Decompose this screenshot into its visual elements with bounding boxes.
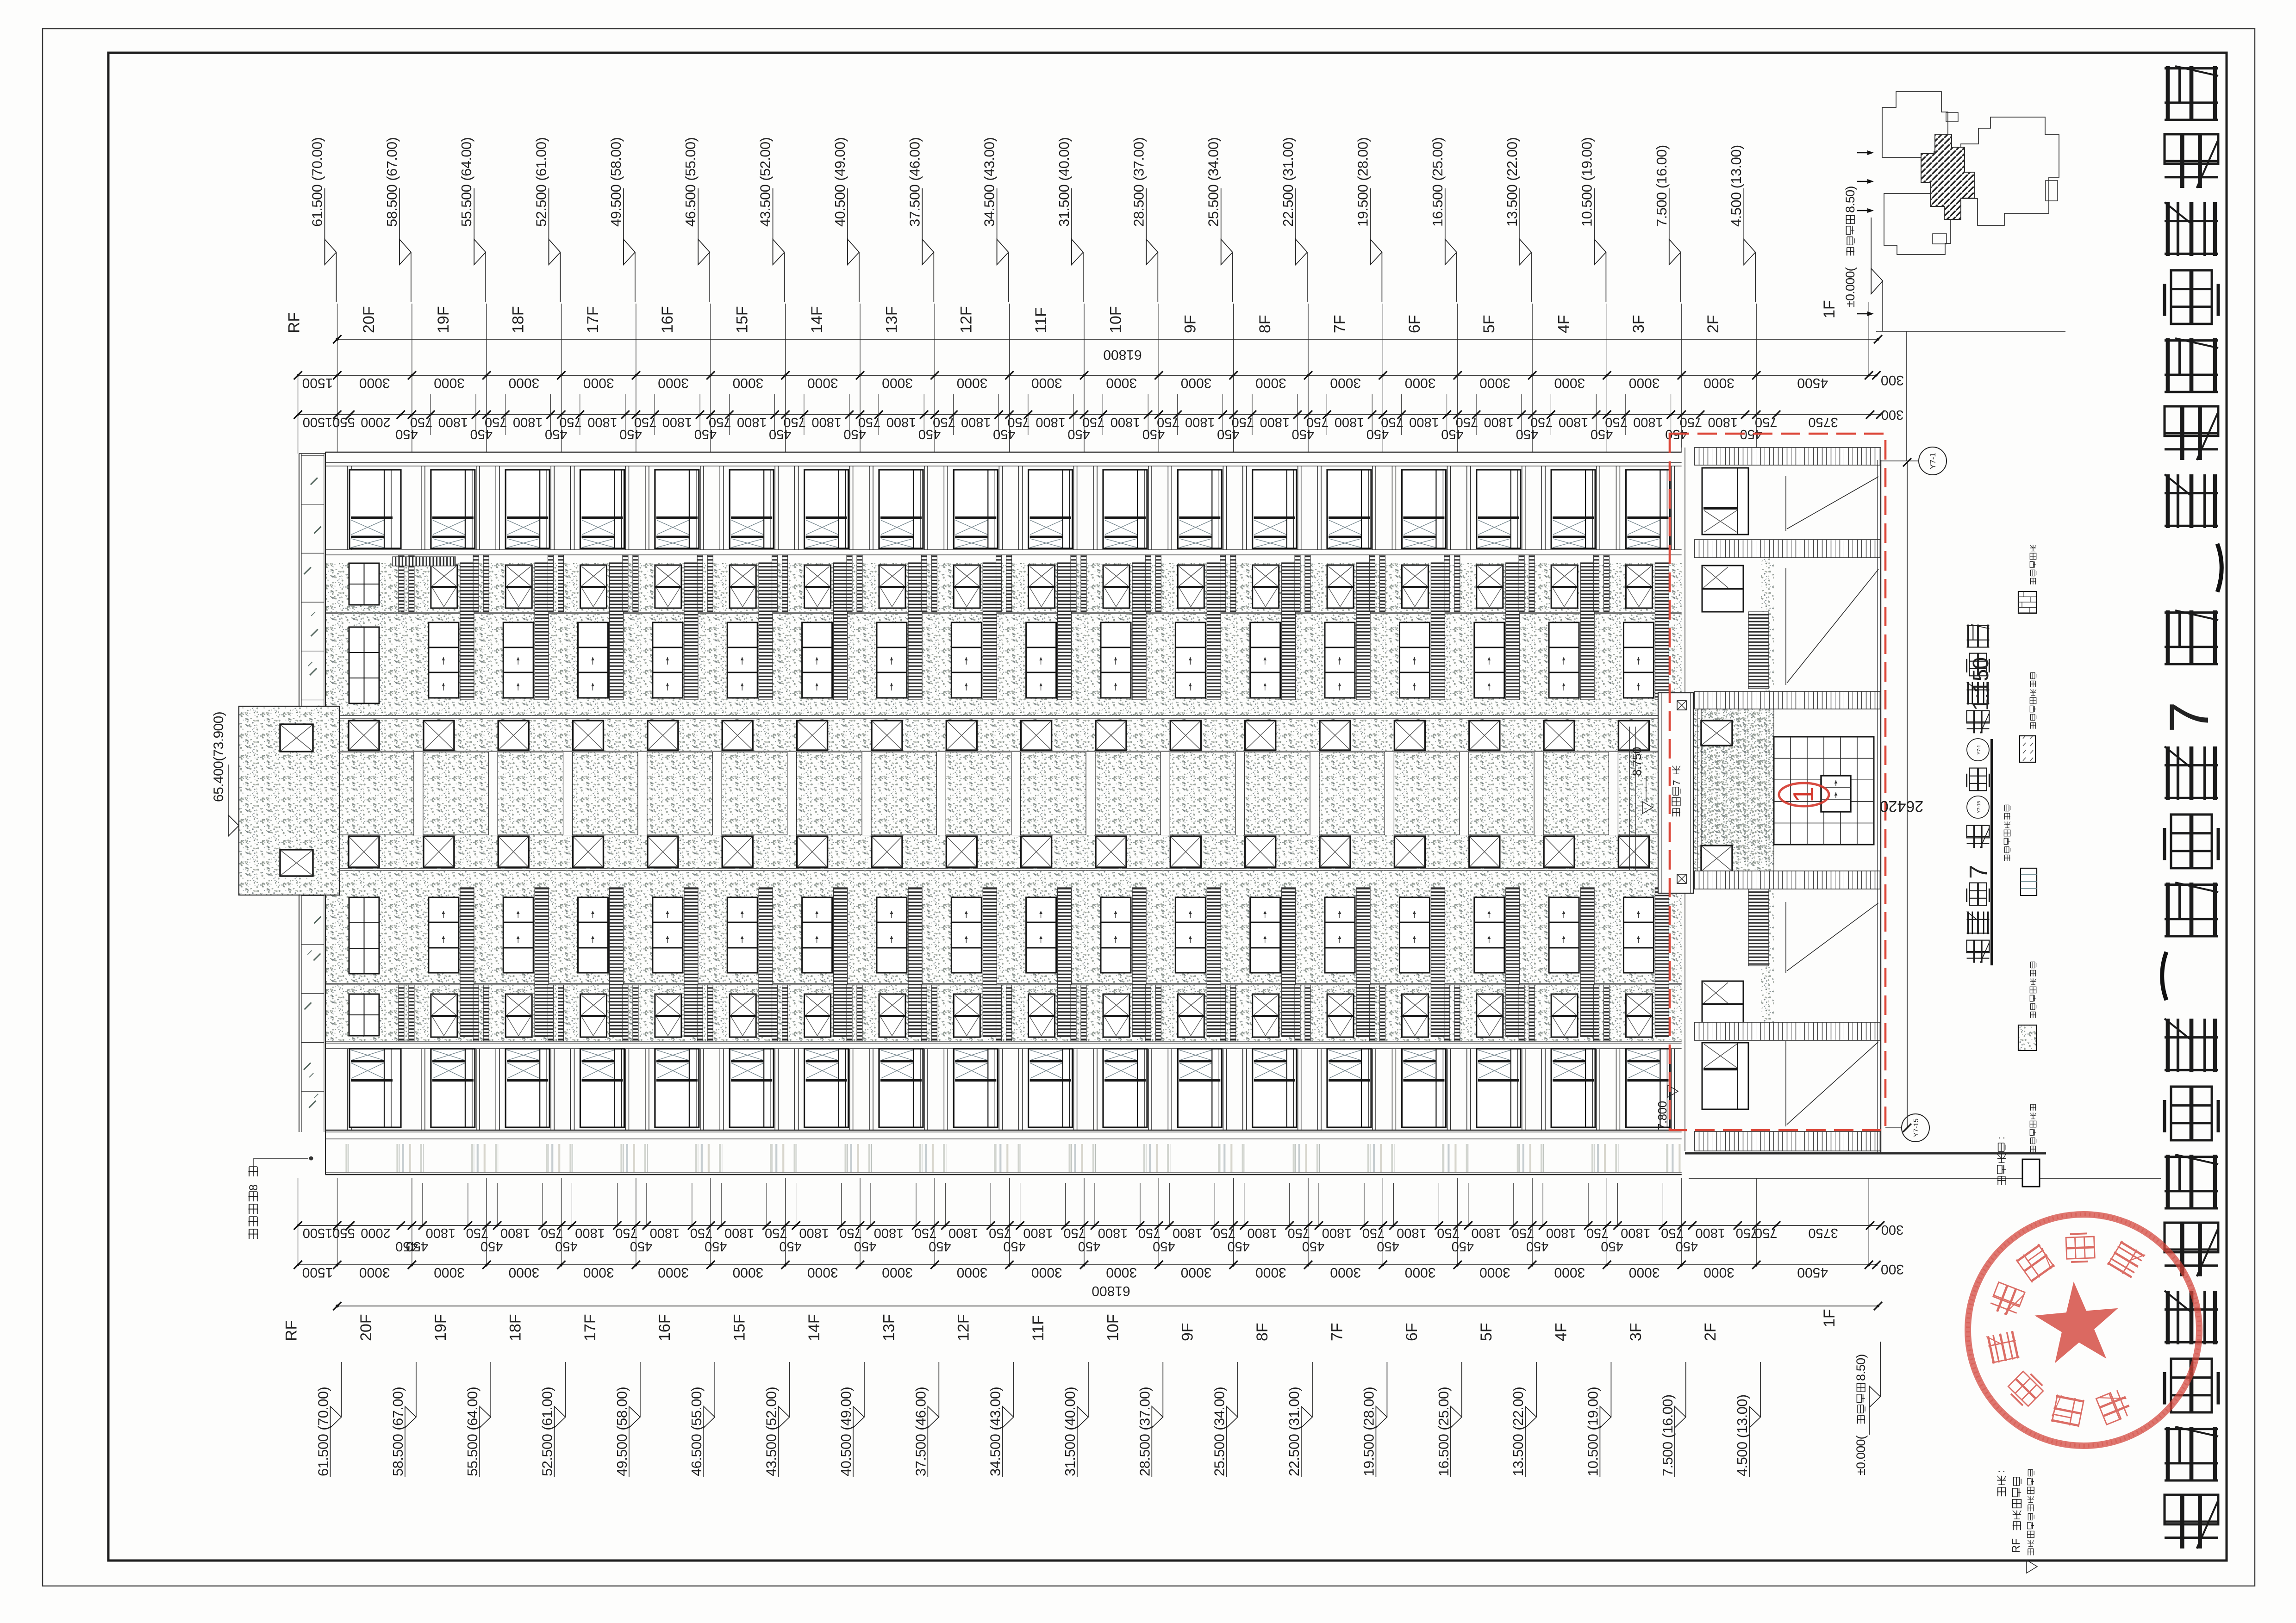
svg-text:1800: 1800 [587, 415, 618, 429]
svg-text:550: 550 [332, 415, 355, 429]
svg-text:3000: 3000 [1031, 1265, 1062, 1280]
svg-text:3000: 3000 [882, 375, 913, 391]
svg-text:10.500 (19.00): 10.500 (19.00) [1585, 1387, 1601, 1476]
svg-text:1800: 1800 [1247, 1225, 1277, 1240]
svg-text:7.800: 7.800 [1655, 1101, 1669, 1130]
svg-text:1800: 1800 [1098, 1225, 1128, 1240]
svg-text:3000: 3000 [1703, 1265, 1734, 1280]
svg-text:450: 450 [705, 1239, 727, 1254]
svg-text:750: 750 [1680, 415, 1702, 429]
svg-text:1500: 1500 [302, 1265, 333, 1280]
svg-text::: : [1995, 1470, 2007, 1473]
svg-text:11F: 11F [1029, 1315, 1047, 1341]
svg-text:750: 750 [410, 415, 432, 429]
svg-text:1800: 1800 [1409, 415, 1439, 429]
svg-text:1800: 1800 [1696, 1225, 1726, 1240]
svg-text:RF: RF [283, 1320, 300, 1341]
svg-text:300: 300 [1881, 1222, 1903, 1237]
svg-text:750: 750 [1362, 1225, 1385, 1240]
svg-text:750: 750 [1063, 1225, 1086, 1240]
svg-text:750: 750 [1755, 1225, 1777, 1240]
svg-text:750: 750 [466, 1225, 488, 1240]
svg-text:1800: 1800 [1111, 415, 1141, 429]
svg-text:2000: 2000 [361, 1225, 391, 1240]
svg-text:3000: 3000 [1479, 1265, 1510, 1280]
svg-text:8F: 8F [1256, 315, 1274, 333]
svg-text:52.500 (61.00): 52.500 (61.00) [533, 137, 549, 227]
svg-text:8.50): 8.50) [1854, 1354, 1868, 1381]
svg-text:1800: 1800 [1708, 415, 1738, 429]
svg-text:1F: 1F [1821, 300, 1838, 318]
svg-text:3000: 3000 [359, 1265, 390, 1280]
svg-text:40.500 (49.00): 40.500 (49.00) [832, 137, 848, 227]
svg-text:1800: 1800 [1335, 415, 1365, 429]
svg-text:3F: 3F [1627, 1323, 1645, 1341]
svg-text::: : [1995, 1137, 2007, 1139]
svg-text:4.500 (13.00): 4.500 (13.00) [1728, 145, 1744, 227]
svg-text:3000: 3000 [733, 375, 764, 391]
svg-text:1800: 1800 [874, 1225, 904, 1240]
svg-text:37.500 (46.00): 37.500 (46.00) [912, 1387, 929, 1476]
svg-text:1800: 1800 [426, 1225, 456, 1240]
svg-text:49.500 (58.00): 49.500 (58.00) [614, 1387, 630, 1476]
svg-text:46.500 (55.00): 46.500 (55.00) [688, 1387, 705, 1476]
svg-text:46.500 (55.00): 46.500 (55.00) [682, 137, 699, 227]
svg-text:750: 750 [1381, 415, 1403, 429]
svg-text:450: 450 [630, 1239, 652, 1254]
svg-text:750: 750 [783, 415, 805, 429]
svg-text:750: 750 [765, 1225, 787, 1240]
svg-text:750: 750 [1232, 415, 1254, 429]
svg-text:3000: 3000 [1181, 1265, 1212, 1280]
svg-text:58.500 (67.00): 58.500 (67.00) [390, 1387, 406, 1476]
svg-text:49.500 (58.00): 49.500 (58.00) [608, 137, 624, 227]
svg-text:RF: RF [286, 312, 303, 333]
svg-text:750: 750 [1007, 415, 1029, 429]
svg-text:34.500 (43.00): 34.500 (43.00) [987, 1387, 1004, 1476]
svg-text:300: 300 [1881, 407, 1903, 422]
svg-text:3000: 3000 [1405, 1265, 1436, 1280]
svg-text:750: 750 [989, 1225, 1011, 1240]
svg-text:450: 450 [1526, 1239, 1548, 1254]
svg-text:28.500 (37.00): 28.500 (37.00) [1130, 137, 1147, 227]
svg-text:3000: 3000 [1106, 1265, 1137, 1280]
svg-text:3000: 3000 [1330, 1265, 1361, 1280]
svg-text:20F: 20F [357, 1314, 375, 1341]
svg-text:3000: 3000 [1703, 375, 1734, 391]
svg-text:450: 450 [1601, 1239, 1623, 1254]
svg-text:3000: 3000 [807, 1265, 838, 1280]
svg-text:13.500 (22.00): 13.500 (22.00) [1504, 137, 1520, 227]
svg-text:3000: 3000 [957, 1265, 988, 1280]
svg-text:2F: 2F [1704, 315, 1722, 333]
svg-text:17F: 17F [584, 306, 602, 333]
svg-text:13F: 13F [883, 306, 900, 333]
svg-text:19F: 19F [432, 1314, 449, 1341]
svg-text:8.50): 8.50) [1843, 186, 1857, 213]
svg-text:3000: 3000 [359, 375, 390, 391]
svg-text:25.500 (34.00): 25.500 (34.00) [1205, 137, 1222, 227]
svg-text:14F: 14F [808, 306, 826, 333]
svg-text:2F: 2F [1702, 1323, 1719, 1341]
svg-text:750: 750 [1213, 1225, 1235, 1240]
svg-text:8F: 8F [1254, 1323, 1271, 1341]
svg-text:8: 8 [247, 1184, 260, 1191]
svg-text:1800: 1800 [811, 415, 842, 429]
svg-text:3750: 3750 [1808, 1225, 1838, 1240]
svg-text:750: 750 [914, 1225, 936, 1240]
svg-text:450: 450 [480, 1239, 503, 1254]
svg-text:3000: 3000 [583, 1265, 614, 1280]
svg-text:750: 750 [1082, 415, 1104, 429]
svg-text:750: 750 [634, 415, 656, 429]
svg-text:7F: 7F [1331, 315, 1348, 333]
svg-text:3000: 3000 [658, 1265, 689, 1280]
svg-text:1800: 1800 [1559, 415, 1589, 429]
svg-text:450: 450 [1228, 1239, 1250, 1254]
svg-text:1500: 1500 [303, 415, 333, 429]
svg-text:3000: 3000 [1255, 375, 1286, 391]
svg-text:750: 750 [541, 1225, 563, 1240]
svg-text:1800: 1800 [513, 415, 543, 429]
svg-text:1: 1 [1788, 787, 1820, 802]
svg-text:750: 750 [1530, 415, 1553, 429]
svg-text:3000: 3000 [509, 375, 540, 391]
svg-text:65.400(73.900): 65.400(73.900) [211, 712, 226, 802]
svg-text:16.500 (25.00): 16.500 (25.00) [1429, 137, 1446, 227]
svg-text:11F: 11F [1032, 307, 1050, 333]
svg-text:16F: 16F [656, 1314, 674, 1341]
svg-text:20F: 20F [360, 306, 378, 333]
svg-text:1800: 1800 [500, 1225, 530, 1240]
svg-text:3000: 3000 [733, 1265, 764, 1280]
svg-text:750: 750 [559, 415, 581, 429]
svg-text:3000: 3000 [583, 375, 614, 391]
svg-text:750: 750 [1736, 1225, 1758, 1240]
svg-text:31.500 (40.00): 31.500 (40.00) [1062, 1387, 1078, 1476]
svg-text:750: 750 [1288, 1225, 1310, 1240]
svg-text:55.500 (64.00): 55.500 (64.00) [458, 137, 474, 227]
svg-text:3000: 3000 [434, 375, 465, 391]
svg-text:2000: 2000 [361, 415, 391, 429]
svg-text:3000: 3000 [1330, 375, 1361, 391]
svg-text:750: 750 [933, 415, 955, 429]
svg-text:±0.000(: ±0.000( [1843, 267, 1857, 307]
svg-text:31.500 (40.00): 31.500 (40.00) [1056, 137, 1072, 227]
svg-text:3000: 3000 [807, 375, 838, 391]
svg-text:7F: 7F [1328, 1323, 1346, 1341]
svg-text:3000: 3000 [1255, 1265, 1286, 1280]
svg-text:4F: 4F [1552, 1323, 1570, 1341]
svg-text:3F: 3F [1630, 315, 1647, 333]
svg-text:3000: 3000 [434, 1265, 465, 1280]
svg-text:450: 450 [1377, 1239, 1399, 1254]
svg-text:450: 450 [929, 1239, 951, 1254]
svg-text:450: 450 [1676, 1239, 1698, 1254]
svg-text:7: 7 [1672, 780, 1682, 785]
svg-text:3000: 3000 [957, 375, 988, 391]
svg-text:450: 450 [1452, 1239, 1474, 1254]
svg-text:550: 550 [332, 1225, 355, 1240]
svg-text:1800: 1800 [1397, 1225, 1427, 1240]
svg-text:1800: 1800 [438, 415, 468, 429]
svg-text:450: 450 [406, 1239, 428, 1254]
svg-text:8.750: 8.750 [1630, 747, 1644, 776]
svg-text:43.500 (52.00): 43.500 (52.00) [763, 1387, 780, 1476]
svg-text:3000: 3000 [509, 1265, 540, 1280]
svg-text:1800: 1800 [1546, 1225, 1576, 1240]
svg-text:450: 450 [854, 1239, 876, 1254]
svg-text:43.500 (52.00): 43.500 (52.00) [757, 137, 774, 227]
svg-text:750: 750 [1512, 1225, 1534, 1240]
svg-text:450: 450 [555, 1239, 577, 1254]
svg-text:19.500 (28.00): 19.500 (28.00) [1360, 1387, 1377, 1476]
svg-text:1800: 1800 [662, 415, 693, 429]
svg-text:7.500 (16.00): 7.500 (16.00) [1653, 145, 1670, 227]
svg-text:750: 750 [1306, 415, 1329, 429]
svg-text:Y7-1: Y7-1 [1977, 745, 1982, 755]
svg-text:1800: 1800 [886, 415, 917, 429]
svg-text:750: 750 [1138, 1225, 1160, 1240]
svg-text:750: 750 [1661, 1225, 1683, 1240]
svg-text:3750: 3750 [1808, 415, 1838, 429]
svg-text:750: 750 [690, 1225, 712, 1240]
svg-text:4500: 4500 [1797, 1265, 1828, 1280]
svg-text:17F: 17F [581, 1314, 599, 1341]
svg-text:3000: 3000 [882, 1265, 913, 1280]
svg-text:300: 300 [1881, 1262, 1904, 1277]
svg-text:16F: 16F [659, 306, 676, 333]
svg-text:13.500 (22.00): 13.500 (22.00) [1510, 1387, 1526, 1476]
svg-text:12F: 12F [955, 1314, 973, 1341]
svg-text:1800: 1800 [1185, 415, 1215, 429]
svg-text:3000: 3000 [1181, 375, 1212, 391]
svg-text:19.500 (28.00): 19.500 (28.00) [1354, 137, 1371, 227]
svg-text:9F: 9F [1179, 1323, 1197, 1341]
svg-text:1800: 1800 [1621, 1225, 1651, 1240]
svg-text:1F: 1F [1821, 1309, 1838, 1327]
svg-text:750: 750 [1157, 415, 1179, 429]
svg-text:1800: 1800 [650, 1225, 680, 1240]
svg-text:6F: 6F [1403, 1323, 1421, 1341]
svg-text:300: 300 [1881, 373, 1904, 388]
svg-text:4.500 (13.00): 4.500 (13.00) [1734, 1394, 1750, 1476]
svg-text:3000: 3000 [1405, 375, 1436, 391]
svg-text:750: 750 [1437, 1225, 1459, 1240]
svg-text:750: 750 [1456, 415, 1478, 429]
svg-text:3000: 3000 [658, 375, 689, 391]
svg-text:750: 750 [615, 1225, 637, 1240]
svg-text:5F: 5F [1480, 315, 1498, 333]
svg-text:61800: 61800 [1103, 347, 1142, 362]
svg-text:6F: 6F [1406, 315, 1423, 333]
svg-text:55.500 (64.00): 55.500 (64.00) [464, 1387, 480, 1476]
svg-text:1500: 1500 [303, 1225, 333, 1240]
svg-text:18F: 18F [507, 1314, 524, 1341]
svg-text:5F: 5F [1478, 1323, 1495, 1341]
svg-text:61800: 61800 [1092, 1283, 1130, 1299]
svg-text:16.500 (25.00): 16.500 (25.00) [1435, 1387, 1452, 1476]
svg-text:1800: 1800 [1036, 415, 1066, 429]
svg-text:25.500 (34.00): 25.500 (34.00) [1211, 1387, 1228, 1476]
svg-text:7.500 (16.00): 7.500 (16.00) [1660, 1394, 1676, 1476]
svg-text:61.500 (70.00): 61.500 (70.00) [315, 1387, 331, 1476]
svg-text:750: 750 [858, 415, 880, 429]
svg-text:3000: 3000 [1629, 375, 1660, 391]
svg-text:Y7-1: Y7-1 [1928, 453, 1937, 469]
svg-text:15F: 15F [734, 306, 751, 333]
svg-text:3000: 3000 [1031, 375, 1062, 391]
svg-text:450: 450 [1302, 1239, 1324, 1254]
svg-text:52.500 (61.00): 52.500 (61.00) [539, 1387, 555, 1476]
svg-text:14F: 14F [805, 1314, 823, 1341]
svg-text:3000: 3000 [1479, 375, 1510, 391]
svg-text:22.500 (31.00): 22.500 (31.00) [1286, 1387, 1302, 1476]
svg-text:RF: RF [2010, 1538, 2022, 1553]
svg-text:19F: 19F [435, 306, 452, 333]
svg-text:±0.000(: ±0.000( [1854, 1435, 1868, 1475]
svg-text:1800: 1800 [1260, 415, 1290, 429]
svg-text:1800: 1800 [1023, 1225, 1053, 1240]
svg-text:1800: 1800 [948, 1225, 979, 1240]
svg-text:34.500 (43.00): 34.500 (43.00) [981, 137, 998, 227]
svg-text:1800: 1800 [575, 1225, 605, 1240]
svg-text:9F: 9F [1182, 315, 1199, 333]
svg-text:4500: 4500 [1797, 375, 1828, 391]
svg-text:450: 450 [1003, 1239, 1025, 1254]
svg-text:1800: 1800 [1173, 1225, 1203, 1240]
svg-text:37.500 (46.00): 37.500 (46.00) [906, 137, 923, 227]
svg-text:450: 450 [1078, 1239, 1100, 1254]
svg-text:13F: 13F [880, 1314, 898, 1341]
svg-text:12F: 12F [958, 306, 975, 333]
svg-text:15F: 15F [731, 1314, 749, 1341]
svg-text:Y7-15: Y7-15 [1977, 801, 1982, 813]
svg-text:61.500 (70.00): 61.500 (70.00) [309, 137, 325, 227]
svg-text:40.500 (49.00): 40.500 (49.00) [838, 1387, 854, 1476]
svg-text:1800: 1800 [1472, 1225, 1502, 1240]
svg-text:3000: 3000 [1106, 375, 1137, 391]
svg-text:450: 450 [1153, 1239, 1175, 1254]
svg-text:750: 750 [1755, 415, 1777, 429]
svg-text:22.500 (31.00): 22.500 (31.00) [1280, 137, 1296, 227]
svg-text:1800: 1800 [1484, 415, 1514, 429]
svg-text:28.500 (37.00): 28.500 (37.00) [1136, 1387, 1153, 1476]
svg-text:26420: 26420 [1880, 797, 1924, 815]
svg-text:7: 7 [2158, 702, 2220, 733]
svg-text:4F: 4F [1555, 315, 1572, 333]
svg-text:1800: 1800 [961, 415, 991, 429]
svg-text:10F: 10F [1107, 306, 1124, 333]
svg-text:750: 750 [1605, 415, 1627, 429]
svg-text:3000: 3000 [1554, 1265, 1585, 1280]
svg-text:1800: 1800 [1633, 415, 1663, 429]
svg-text:7: 7 [1965, 865, 1992, 879]
svg-text:10F: 10F [1104, 1314, 1122, 1341]
svg-text:18F: 18F [510, 306, 527, 333]
svg-text:1:150: 1:150 [1969, 658, 1993, 711]
svg-text:750: 750 [1586, 1225, 1609, 1240]
svg-text:1800: 1800 [1322, 1225, 1352, 1240]
svg-text:3000: 3000 [1554, 375, 1585, 391]
svg-text:1500: 1500 [302, 375, 333, 391]
svg-text:750: 750 [485, 415, 507, 429]
svg-text:Y7-15: Y7-15 [1912, 1119, 1920, 1137]
svg-text:1800: 1800 [799, 1225, 829, 1240]
svg-text:750: 750 [839, 1225, 861, 1240]
svg-text:1800: 1800 [724, 1225, 755, 1240]
svg-text:10.500 (19.00): 10.500 (19.00) [1578, 137, 1595, 227]
svg-text:750: 750 [709, 415, 731, 429]
svg-text:450: 450 [779, 1239, 801, 1254]
svg-text:1800: 1800 [737, 415, 767, 429]
svg-text:58.500 (67.00): 58.500 (67.00) [384, 137, 400, 227]
svg-text:3000: 3000 [1629, 1265, 1660, 1280]
